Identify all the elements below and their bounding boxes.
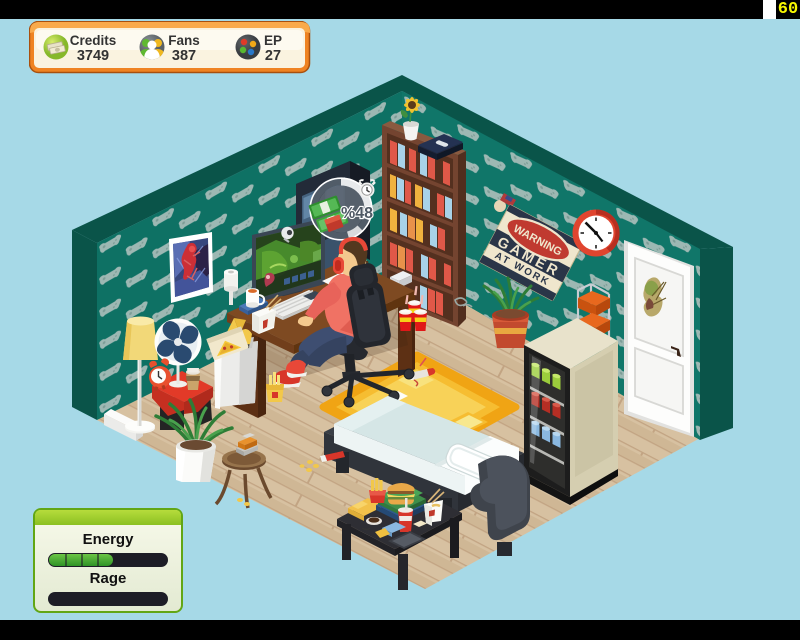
svg-text:3749: 3749 (77, 48, 109, 64)
svg-text:EP: EP (264, 33, 282, 48)
svg-text:Fans: Fans (168, 33, 200, 48)
svg-text:27: 27 (265, 48, 281, 64)
svg-text:Credits: Credits (70, 33, 117, 48)
svg-text:387: 387 (172, 48, 196, 64)
svg-text:%48: %48 (341, 205, 373, 222)
